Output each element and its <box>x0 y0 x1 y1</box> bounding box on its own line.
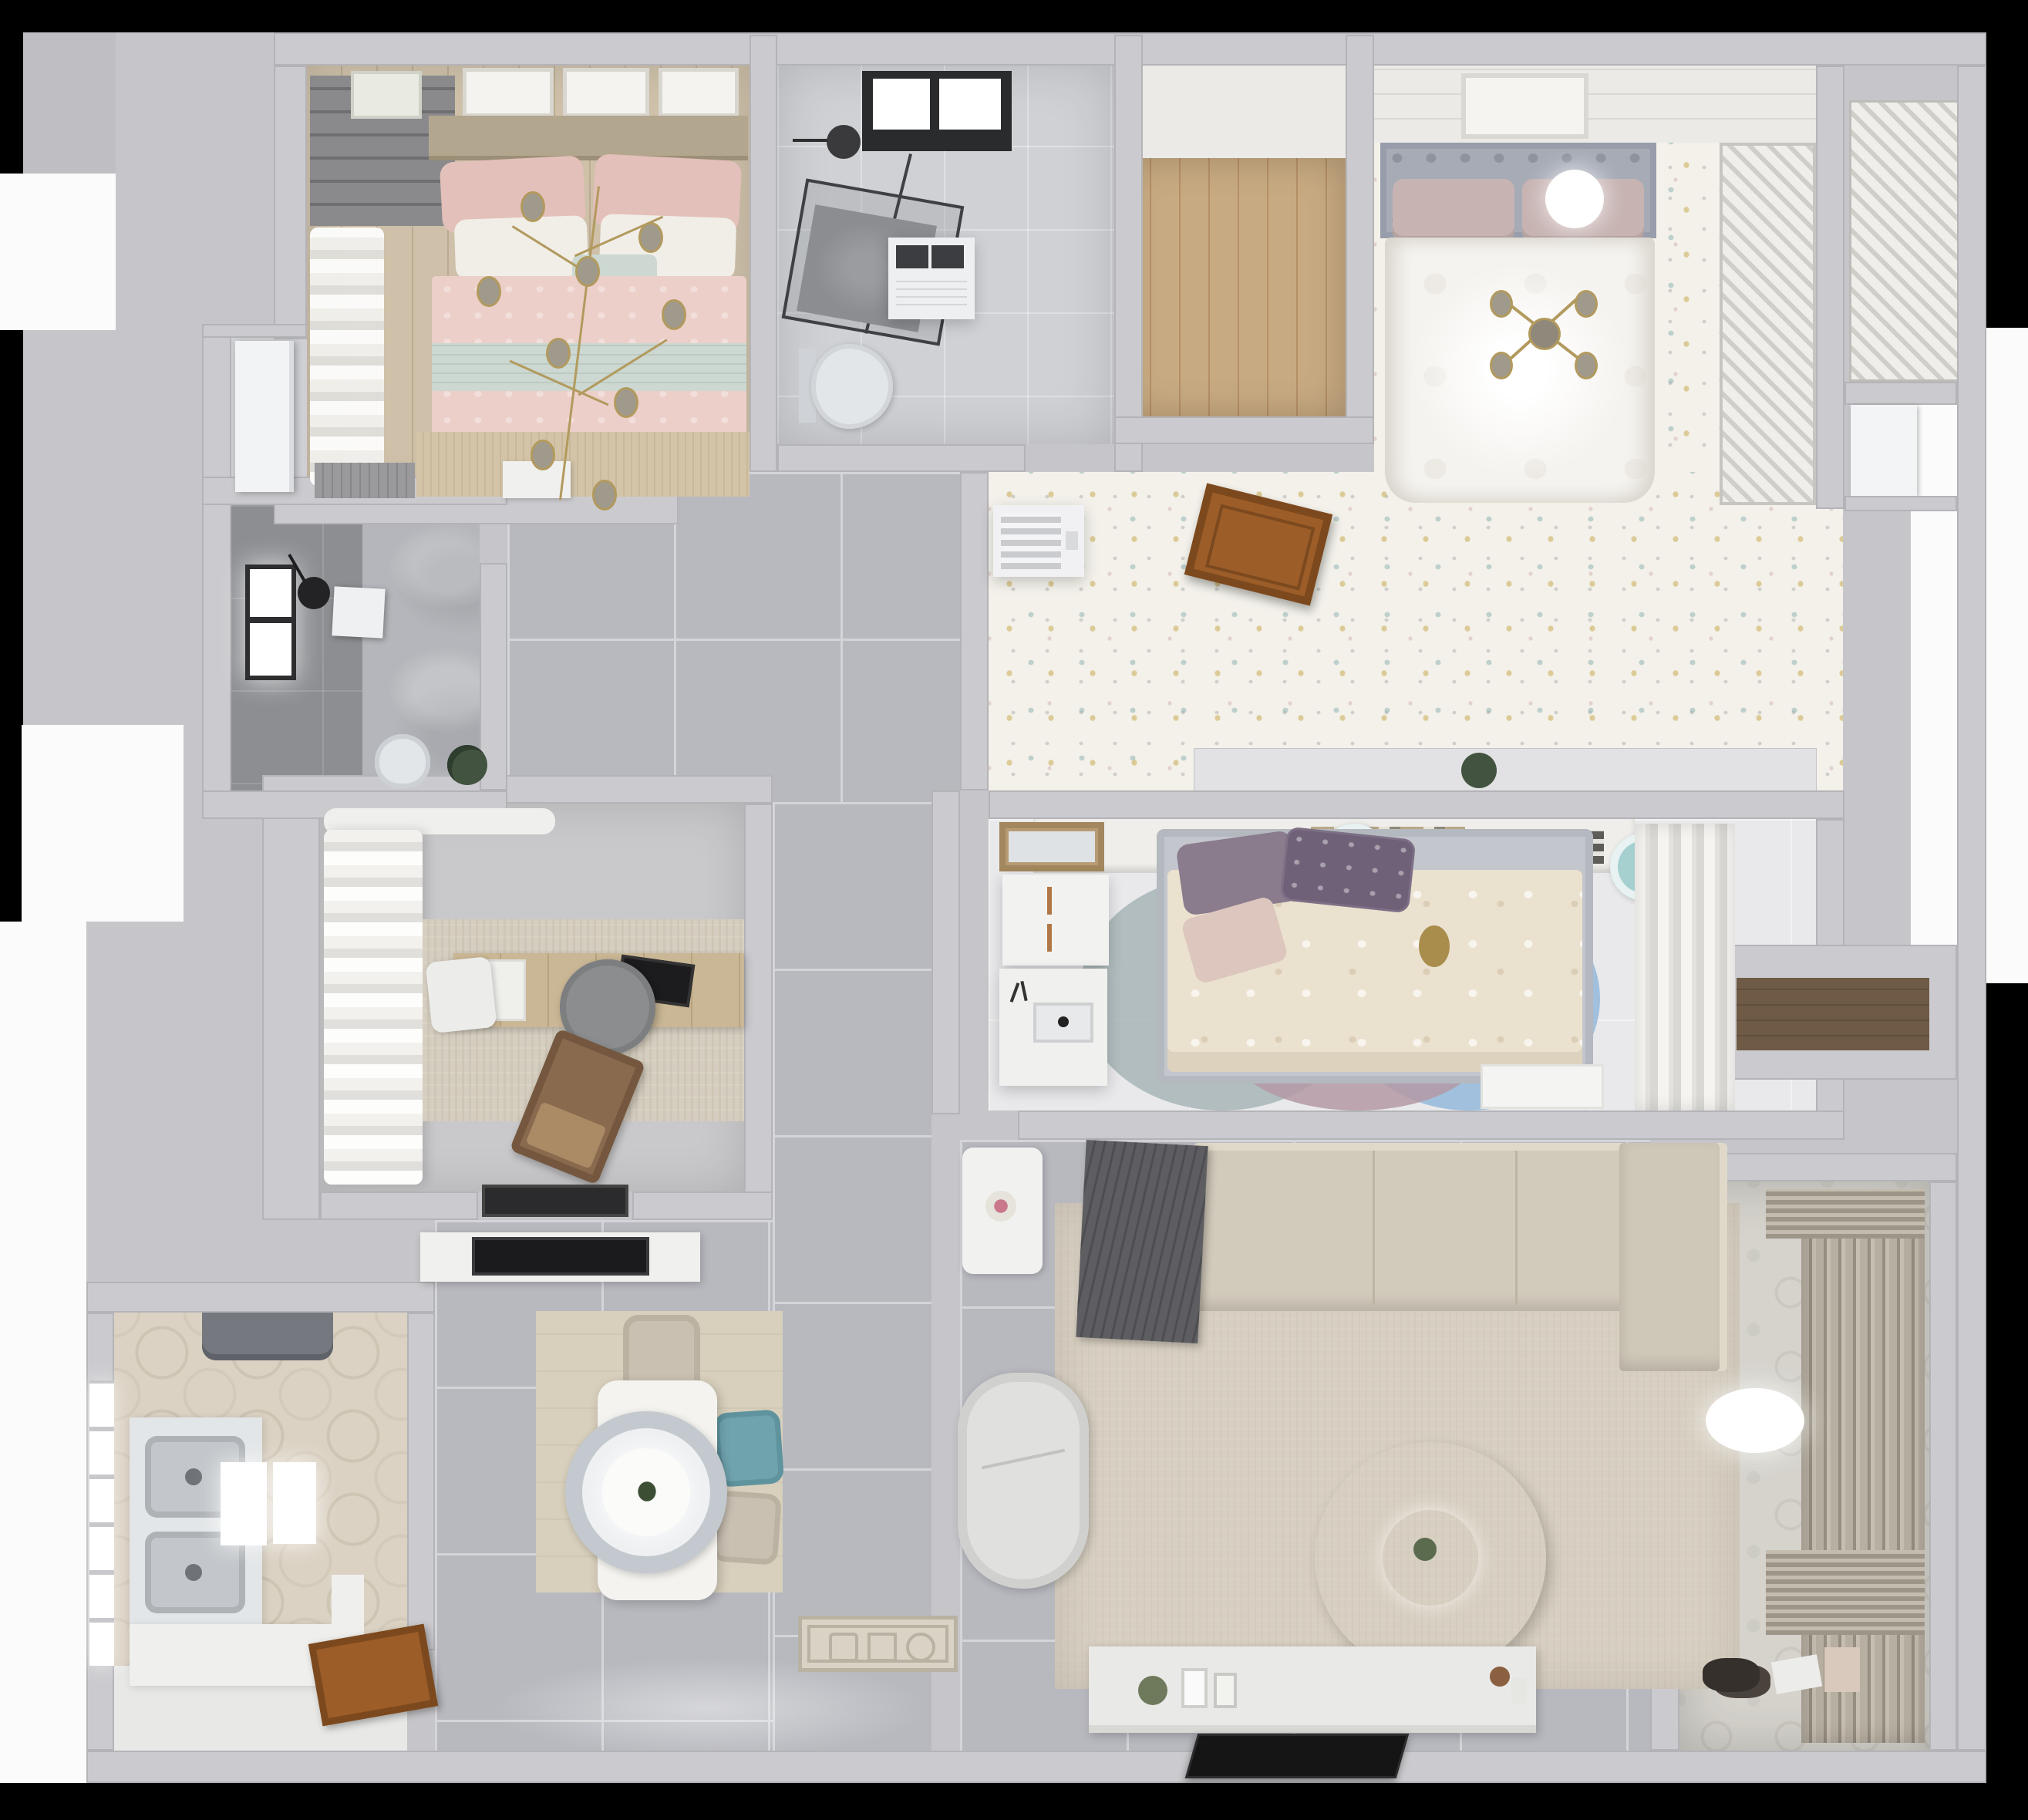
chandelier-bulb <box>1490 352 1513 379</box>
kitchen-counter-light <box>273 1462 316 1544</box>
sofa-seat <box>1194 1143 1659 1311</box>
cabinet-handle <box>1047 924 1052 952</box>
console-decor <box>1511 1677 1527 1704</box>
balcony-blind-stack <box>1766 1550 1925 1635</box>
chandelier-bulb <box>592 480 617 511</box>
bed-guest-pillow <box>1393 179 1514 242</box>
bed-master-headboard <box>429 116 748 160</box>
sphere-lamp <box>1545 170 1604 228</box>
tv-panel <box>1185 1734 1410 1778</box>
cabinet-handle <box>1047 887 1052 915</box>
walkin-closet-wall-band <box>1122 62 1346 158</box>
wall-outer-right <box>1957 66 1986 1751</box>
wall-bedroom-master-left <box>274 66 307 339</box>
floor-plan-stage <box>0 0 2028 1820</box>
console-frame <box>1181 1668 1208 1708</box>
wall-bath-top-bottom <box>777 444 1026 472</box>
side-table-flowers <box>985 1191 1016 1222</box>
door-panel-line <box>1205 504 1316 591</box>
wall-bedroom-master-bath-divider <box>750 35 777 472</box>
bath-dark-plant <box>447 745 487 785</box>
branch-chandelier <box>463 185 709 509</box>
console-plant <box>1138 1676 1167 1705</box>
wall-study-left <box>262 804 320 1220</box>
vent-tab <box>1066 531 1078 550</box>
armchair-seam <box>982 1449 1065 1470</box>
shelf-low-hallway <box>1194 748 1817 793</box>
washer-panel <box>896 245 928 268</box>
balcony-clutter-box <box>1824 1647 1860 1692</box>
wall-vestibule-top <box>202 324 307 338</box>
backdrop-patch <box>22 725 184 922</box>
washer-lines <box>896 275 967 312</box>
room-walkin-closet-floor <box>1122 158 1346 416</box>
desk-pens <box>1010 982 1020 1003</box>
kids-vanity-cabinet <box>1002 875 1109 966</box>
computer-logo-dot <box>1058 1016 1069 1027</box>
living-armchair <box>958 1373 1089 1589</box>
chandelier-bulb <box>614 387 638 418</box>
wall-kitchen-dining-divider <box>407 1313 435 1650</box>
bath-dark-towel-mat <box>332 586 385 638</box>
balcony-ceiling-light <box>1706 1388 1804 1453</box>
ac-vent <box>993 505 1084 577</box>
chandelier-bulb <box>1575 352 1598 379</box>
backdrop-patch <box>0 174 116 330</box>
wall-under-louver <box>1844 382 1957 405</box>
balcony-vertical-blinds <box>1801 1189 1925 1743</box>
dining-ring-pendant <box>565 1411 727 1573</box>
kids-wardrobe-clothes <box>1635 824 1735 1111</box>
bed-kids-pillow-purple <box>1279 826 1416 913</box>
console-decor <box>1490 1667 1510 1687</box>
chandelier-bulb <box>531 440 555 470</box>
doormat-motif <box>829 1633 858 1662</box>
wall-closet-bottom <box>1114 416 1374 444</box>
washer-panel <box>931 245 964 268</box>
door-vestibule-white <box>235 341 294 492</box>
sofa-chaise <box>1619 1143 1727 1371</box>
wall-vestibule-left <box>202 328 231 819</box>
hallway-upper-floor <box>989 472 1843 790</box>
wall-bedroom-guest-right <box>1816 66 1844 509</box>
bed-kids-gold-sprig <box>1419 925 1450 967</box>
kitchen-window <box>89 1380 114 1666</box>
skylight-pane <box>873 79 930 130</box>
wall-frame-art <box>463 68 554 117</box>
balcony-blind-stack <box>1766 1189 1925 1239</box>
washing-machine <box>888 238 975 319</box>
vent-grille <box>1001 513 1061 569</box>
wall-outer-bottom <box>86 1751 1986 1783</box>
coffee-table <box>1315 1442 1546 1673</box>
skylight-pane <box>939 79 1001 130</box>
study-curtains <box>324 830 423 1185</box>
wall-closet-right <box>1346 35 1374 444</box>
chandelier-hub <box>1528 318 1561 350</box>
sofa-seam <box>1515 1151 1518 1305</box>
wall-balcony-right <box>1929 1181 1957 1751</box>
bath-dark-window-bar <box>245 617 296 623</box>
bedroom-guest-ceiling-band <box>1374 66 1816 143</box>
doormat-motif <box>867 1633 897 1662</box>
kitchen-range-hood <box>202 1313 333 1360</box>
wall-study-bottom-b <box>632 1191 773 1220</box>
backdrop-patch <box>23 32 116 177</box>
kids-white-mat <box>1481 1064 1604 1109</box>
console-frame <box>1214 1673 1237 1708</box>
cross-chandelier <box>1488 278 1596 386</box>
bath-dark-toilet <box>375 734 430 788</box>
guest-louver-wardrobe <box>1720 143 1816 505</box>
hallway-b-floor <box>773 802 931 1751</box>
chandelier-bulb <box>1575 290 1598 318</box>
wall-frame-art <box>563 68 649 117</box>
wall-frame-art <box>659 68 739 117</box>
kitchen-counter-bottom <box>130 1624 332 1686</box>
study-doormat-black <box>482 1185 628 1217</box>
balcony-clutter-dark <box>1703 1658 1760 1692</box>
chandelier-bulb <box>1490 290 1513 318</box>
niche-wood-shelf <box>1737 978 1929 1050</box>
kids-desk <box>999 969 1107 1086</box>
entry-doormat <box>798 1616 958 1672</box>
chandelier-bulb <box>520 191 545 222</box>
sink-drain <box>185 1564 202 1581</box>
wall-right-mid <box>1844 496 1957 511</box>
bedroom-master-sheer-curtain <box>310 228 384 486</box>
chandelier-bulb <box>662 299 686 330</box>
plant-on-shelf <box>1461 753 1497 788</box>
wall-bedroom-kids-bottom <box>1018 1111 1844 1140</box>
bedroom-master-bench <box>315 463 415 498</box>
wall-study-bottom-a <box>320 1191 478 1220</box>
kids-vanity-mirror <box>999 822 1104 871</box>
backdrop-patch <box>0 922 86 1783</box>
wall-kitchen-top <box>86 1282 435 1313</box>
wall-bedroom-kids-top <box>989 790 1844 819</box>
pendant-plant <box>632 1475 662 1508</box>
door-right-white <box>1851 405 1917 496</box>
wall-hallway-upper-left <box>960 472 989 790</box>
wall-study-right <box>744 804 773 1220</box>
sink-drain <box>185 1468 202 1485</box>
chandelier-bulb <box>477 276 501 307</box>
kitchen-counter-light <box>221 1462 267 1545</box>
coffee-table-plant <box>1413 1538 1437 1561</box>
chandelier-bulb <box>638 222 663 253</box>
wall-frame-art <box>1461 73 1588 139</box>
desk-pens <box>1020 981 1027 1001</box>
chandelier-bulb <box>575 256 600 287</box>
wall-bath-top-right <box>1114 35 1143 472</box>
mirror-glass <box>1009 831 1095 862</box>
tv-console <box>1089 1646 1536 1733</box>
sofa-seam <box>1373 1151 1375 1305</box>
wall-bedroom-kids-left <box>931 790 960 1114</box>
sofa-grey-throw <box>1076 1140 1208 1343</box>
study-desk-chair-white <box>425 956 497 1033</box>
cooktop-hob <box>472 1237 649 1276</box>
dining-cooktop-counter <box>420 1232 700 1282</box>
sofa-side-table <box>962 1148 1043 1274</box>
chandelier-bulb <box>546 338 571 369</box>
shower-head <box>827 125 861 159</box>
lounge-chair-cushion <box>525 1101 606 1168</box>
dining-chair-beige <box>623 1315 700 1388</box>
floor-light-glow <box>494 1658 925 1758</box>
bath-dark-shower-head <box>298 577 330 609</box>
wall-frame-art-green <box>351 71 422 119</box>
doormat-motif <box>906 1633 935 1662</box>
